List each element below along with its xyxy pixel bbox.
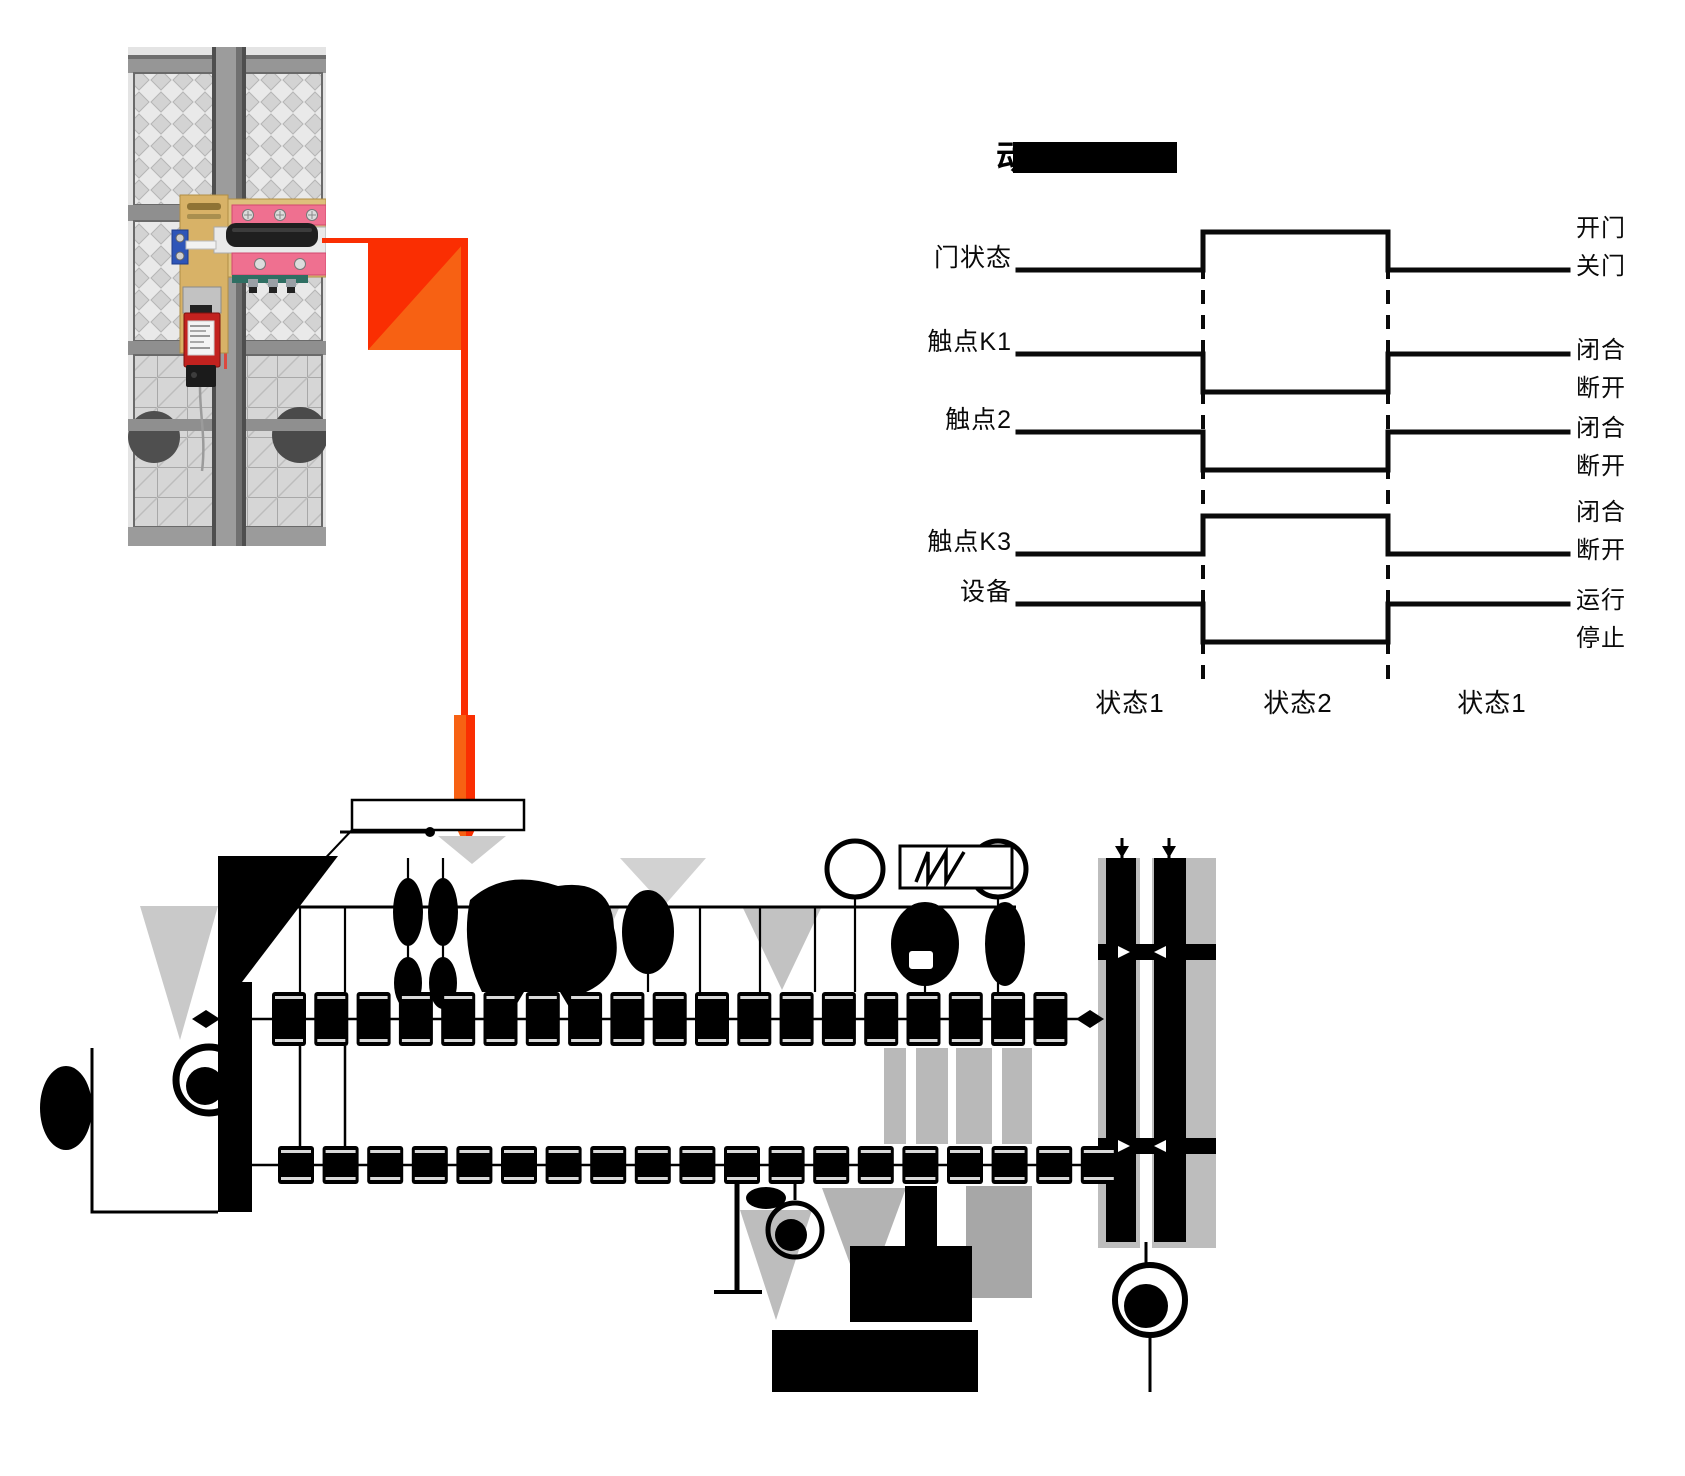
terminal-block [610,992,644,1046]
terminal-block [526,992,560,1046]
page: 动 门状态开门关门触点K1闭合断开触点2闭合断开触点K3闭合断开设备运行停止状态… [0,0,1685,1476]
terminal-block [822,992,856,1046]
terminal-block [568,992,602,1046]
terminal-block [272,992,306,1046]
terminal-block [653,992,687,1046]
terminal-block [949,992,983,1046]
wiring-schematic-graphic [0,0,1685,1476]
terminal-block [780,992,814,1046]
terminal-block [737,992,771,1046]
terminal-block [441,992,475,1046]
terminal-block [991,992,1025,1046]
terminal-block [695,992,729,1046]
terminal-block [484,992,518,1046]
terminal-block [907,992,941,1046]
right-column-bar [1154,858,1186,1242]
terminal-block [1033,992,1067,1046]
terminal-block [864,992,898,1046]
left-structure [218,856,338,982]
terminal-block [399,992,433,1046]
schematic-shadows [140,836,1216,1320]
right-column-bar [1106,858,1136,1242]
terminal-block [357,992,391,1046]
terminal-block [314,992,348,1046]
